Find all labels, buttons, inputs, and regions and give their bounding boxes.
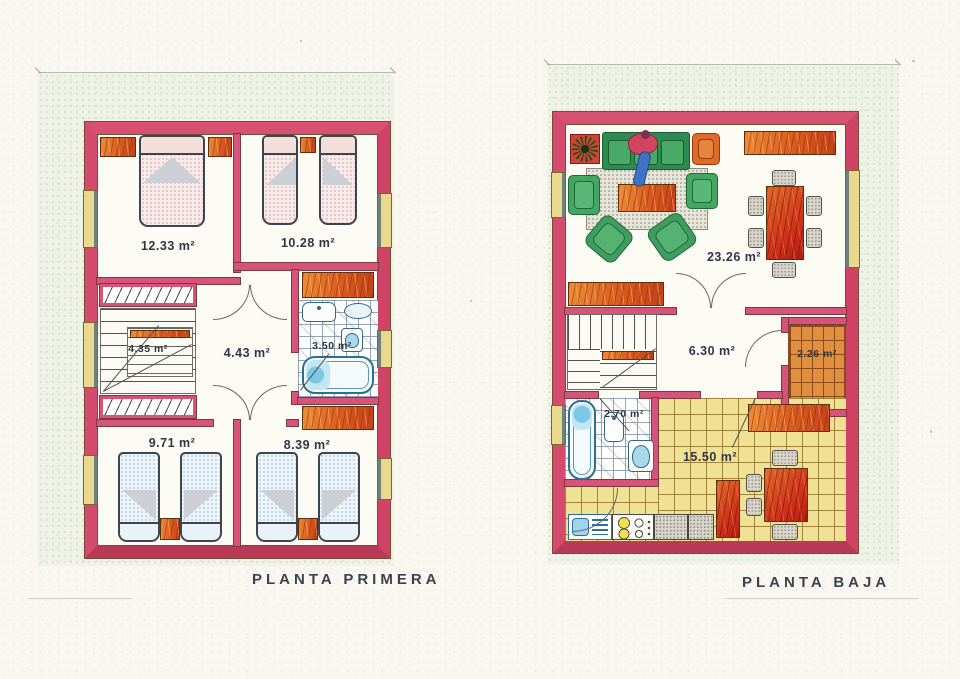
kitchen-cupboard	[748, 404, 830, 432]
window	[377, 193, 392, 248]
bidet	[344, 303, 372, 319]
dining-chair	[748, 228, 764, 248]
scan-speck	[930, 430, 932, 433]
person-head	[641, 130, 650, 139]
wardrobe	[302, 406, 374, 430]
scanned-floor-plan-sheet: { "sheet": { "captions": { "first_floor"…	[0, 0, 960, 679]
partition-wall	[234, 134, 240, 272]
room-area-label: 3.50 m²	[290, 340, 374, 352]
sheet-fold	[266, 157, 296, 185]
dresser	[208, 137, 232, 157]
room-area-label: 2.26 m²	[788, 348, 846, 360]
bed-pillow-band	[182, 522, 220, 540]
bed-pillow-band	[120, 522, 158, 540]
room-area-label: 8.39 m²	[257, 438, 357, 452]
single-bed	[262, 135, 298, 225]
partition-wall	[287, 420, 298, 426]
kitchen-chair	[746, 474, 762, 492]
stair-flight	[568, 349, 600, 389]
plant-side-table	[570, 134, 600, 164]
washbasin	[302, 302, 336, 322]
nightstand	[160, 518, 180, 540]
sheet-fold	[122, 490, 156, 520]
window	[845, 170, 860, 268]
kitchen-chair	[772, 524, 798, 540]
armchair-green	[568, 175, 600, 215]
room-area-label: 6.30 m²	[662, 344, 762, 358]
scan-speck	[912, 60, 915, 62]
partition-wall	[234, 420, 240, 546]
room-area-label: 10.28 m²	[258, 236, 358, 250]
scan-artifact-line	[28, 598, 132, 599]
armchair-cushion	[698, 139, 714, 159]
sofa-cushion	[661, 140, 684, 165]
lounge-chair-cushion	[591, 221, 628, 258]
bed-pillow-band	[320, 522, 358, 540]
closet-hatched	[100, 284, 196, 306]
coffee-table	[618, 184, 676, 212]
room-area-label: 4.43 m²	[197, 346, 297, 360]
bed-pillow-band	[258, 522, 296, 540]
single-bed	[180, 452, 222, 542]
armchair-cushion	[574, 181, 594, 209]
kitchen-chair	[772, 450, 798, 466]
dining-chair	[748, 196, 764, 216]
sideboard	[568, 282, 664, 306]
sheet-fold	[323, 157, 353, 185]
single-bed	[256, 452, 298, 542]
nightstand	[298, 518, 318, 540]
wardrobe	[302, 272, 374, 298]
armchair-cushion	[692, 179, 712, 203]
kitchen-table	[764, 468, 808, 522]
potted-plant-center	[581, 145, 589, 153]
toilet-bowl	[632, 445, 650, 468]
room-area-label: 15.50 m²	[660, 450, 760, 464]
room-area-label: 9.71 m²	[122, 436, 222, 450]
sheet-fold	[260, 490, 294, 520]
stair-flight	[568, 315, 656, 349]
stove-cooktop	[612, 514, 654, 540]
dining-chair	[806, 228, 822, 248]
bathtub	[568, 400, 596, 480]
partition-wall	[782, 318, 846, 324]
closet-hatched	[100, 396, 196, 418]
room-area-label: 2.70 m²	[596, 408, 652, 420]
faucet	[317, 306, 321, 310]
bathtub-water	[306, 360, 330, 390]
kitchen-chair	[746, 498, 762, 516]
scan-speck	[300, 40, 302, 42]
sheet-fold	[172, 157, 201, 183]
dining-chair	[806, 196, 822, 216]
window	[551, 172, 566, 218]
wardrobe	[100, 137, 136, 157]
armchair-green	[686, 173, 718, 209]
window	[83, 190, 98, 248]
partition-wall	[782, 318, 788, 332]
partition-wall	[746, 308, 846, 314]
kitchen-counter	[654, 514, 688, 540]
bed-pillow-band	[321, 137, 355, 155]
single-bed	[318, 452, 360, 542]
stair-landing-edge	[130, 330, 190, 338]
bathtub-water	[572, 404, 592, 430]
scan-artifact-line	[726, 598, 918, 599]
plan-caption-ground-floor: PLANTA BAJA	[742, 574, 890, 591]
window	[377, 458, 392, 500]
room-area-label: 23.26 m²	[684, 250, 784, 264]
bed-pillow-band	[141, 137, 203, 155]
window	[551, 405, 566, 445]
room-area-label: 4.35 m²	[104, 343, 192, 355]
dining-table	[766, 186, 804, 260]
partition-wall	[758, 392, 782, 398]
nightstand	[300, 137, 316, 153]
window	[377, 330, 392, 368]
plan-caption-first-floor: PLANTA PRIMERA	[252, 571, 441, 588]
kitchen-counter	[688, 514, 714, 540]
room-area-label: 12.33 m²	[118, 239, 218, 253]
window	[83, 322, 98, 388]
partition-wall	[234, 263, 378, 270]
partition-wall	[298, 398, 378, 404]
armchair-orange	[692, 133, 720, 165]
sheet-fold	[322, 490, 356, 520]
scan-speck	[470, 300, 472, 302]
staircase	[567, 314, 657, 390]
single-bed	[319, 135, 357, 225]
partition-wall	[565, 392, 598, 398]
toilet	[628, 440, 654, 472]
bed-pillow-band	[264, 137, 296, 155]
kitchen-island	[716, 480, 740, 538]
sheet-fold	[184, 490, 218, 520]
sideboard	[744, 131, 836, 155]
partition-wall	[640, 392, 700, 398]
sheet-fold	[143, 157, 172, 183]
window	[83, 455, 98, 505]
dining-chair	[772, 262, 796, 278]
dining-chair	[772, 170, 796, 186]
partition-wall	[565, 480, 658, 486]
double-bed	[139, 135, 205, 227]
single-bed	[118, 452, 160, 542]
partition-wall	[97, 420, 213, 426]
